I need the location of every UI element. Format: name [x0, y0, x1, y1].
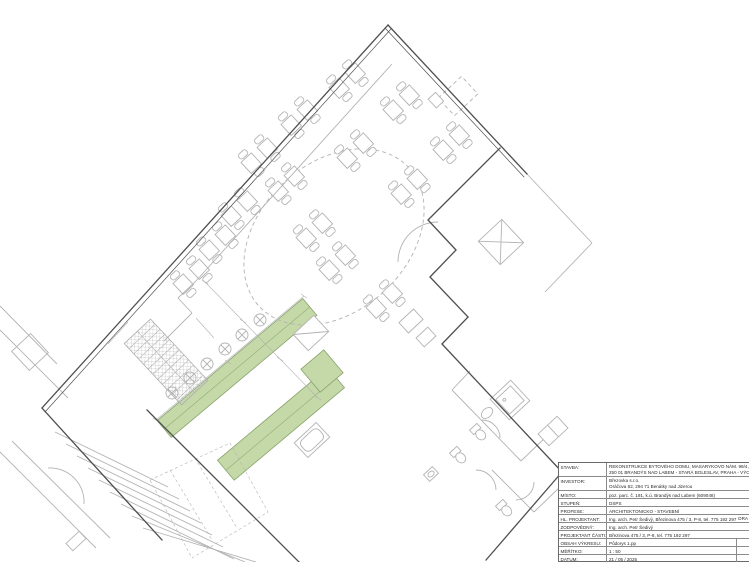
- empty-cell: [736, 547, 749, 554]
- table-group: [194, 219, 241, 265]
- field-label: INVESTOR:: [559, 477, 607, 490]
- field-value: Půdorys 1.pp: [607, 539, 736, 546]
- table-group: [276, 94, 323, 140]
- table-group: [428, 119, 475, 165]
- field-value: poz. parc. č. 191, k.ú. Brandýs nad Labe…: [607, 491, 749, 498]
- stool: [236, 329, 248, 341]
- title-block-row: PROFESE: ARCHITEKTONICKO - STAVEBNÍ: [559, 507, 749, 515]
- title-block-row: STAVBA: REKONSTRUKCE BYTOVÉHO DOMU, MASA…: [559, 463, 749, 477]
- appliance: [538, 416, 568, 445]
- stool: [219, 343, 231, 355]
- clipped-side-text: DRA: [738, 516, 748, 521]
- counter: [416, 327, 436, 347]
- toilet: [470, 423, 489, 442]
- field-value: Ing. arch. Petr Šedivý, Březinova 475 / …: [607, 515, 749, 522]
- table-group: [291, 207, 338, 253]
- table-group: [236, 132, 283, 178]
- field-value: Ing. arch. Petr Šedivý: [607, 523, 749, 530]
- title-block: STAVBA: REKONSTRUKCE BYTOVÉHO DOMU, MASA…: [558, 462, 749, 562]
- field-value: 1 : 50: [607, 547, 736, 554]
- field-value: Březovka s.r.o. Oráčova 62, 294 71 Benát…: [607, 477, 749, 490]
- toilet: [450, 446, 469, 465]
- field-label: MĚŘÍTKO:: [559, 547, 607, 554]
- table-group: [332, 127, 379, 173]
- field-label: OBSAH VÝKRESU:: [559, 539, 607, 546]
- field-label: DATUM:: [559, 555, 607, 562]
- table-group: [378, 79, 425, 125]
- field-label: PROFESE:: [559, 507, 607, 514]
- table-group: [324, 57, 371, 103]
- table-group: [386, 163, 433, 209]
- table-group: [361, 277, 408, 323]
- empty-cell: [736, 555, 749, 562]
- field-label: STUPEŇ:: [559, 499, 607, 506]
- title-block-row: STUPEŇ: DSPS: [559, 499, 749, 507]
- field-value: 21 / 05 / 2025: [607, 555, 736, 562]
- field-label: ZODPOVĚDNÝ:: [559, 523, 607, 530]
- interior-partitions: [164, 64, 592, 512]
- field-value: REKONSTRUKCE BYTOVÉHO DOMU, MASARYKOVO N…: [607, 463, 749, 476]
- field-label: STAVBA:: [559, 463, 607, 476]
- stool: [201, 358, 213, 370]
- staircase-lower-treads: [55, 432, 256, 562]
- shower: [490, 380, 530, 420]
- field-label: PROJEKTANT ČÁSTI:: [559, 531, 607, 538]
- adjacent-building-left: [0, 306, 110, 551]
- field-value: ARCHITEKTONICKO - STAVEBNÍ: [607, 507, 749, 514]
- tub: [294, 422, 330, 457]
- sink: [479, 405, 495, 420]
- title-block-row: ZODPOVĚDNÝ: Ing. arch. Petr Šedivý: [559, 523, 749, 531]
- dining-tables: [168, 57, 475, 323]
- drawing-canvas: STAVBA: REKONSTRUKCE BYTOVÉHO DOMU, MASA…: [0, 0, 749, 562]
- toilet: [496, 499, 515, 518]
- field-value: Březinova 475 / 3, P-8, tel. 775 192 297: [607, 531, 749, 538]
- title-block-row: MÍSTO: poz. parc. č. 191, k.ú. Brandýs n…: [559, 491, 749, 499]
- field-label: MÍSTO:: [559, 491, 607, 498]
- title-block-row: PROJEKTANT ČÁSTI: Březinova 475 / 3, P-8…: [559, 531, 749, 539]
- title-block-row: INVESTOR: Březovka s.r.o. Oráčova 62, 29…: [559, 477, 749, 491]
- empty-cell: [736, 539, 749, 546]
- title-block-row: MĚŘÍTKO: 1 : 50: [559, 547, 749, 555]
- basin: [424, 467, 439, 482]
- table-group: [314, 239, 361, 285]
- title-block-row: DATUM: 21 / 05 / 2025: [559, 555, 749, 562]
- counter: [399, 309, 423, 333]
- title-block-row: HL. PROJEKTANT: Ing. arch. Petr Šedivý, …: [559, 515, 749, 523]
- field-value: DSPS: [607, 499, 749, 506]
- field-label: HL. PROJEKTANT:: [559, 515, 607, 522]
- title-block-row: OBSAH VÝKRESU: Půdorys 1.pp: [559, 539, 749, 547]
- stool: [254, 314, 266, 326]
- fixtures: [293, 72, 568, 518]
